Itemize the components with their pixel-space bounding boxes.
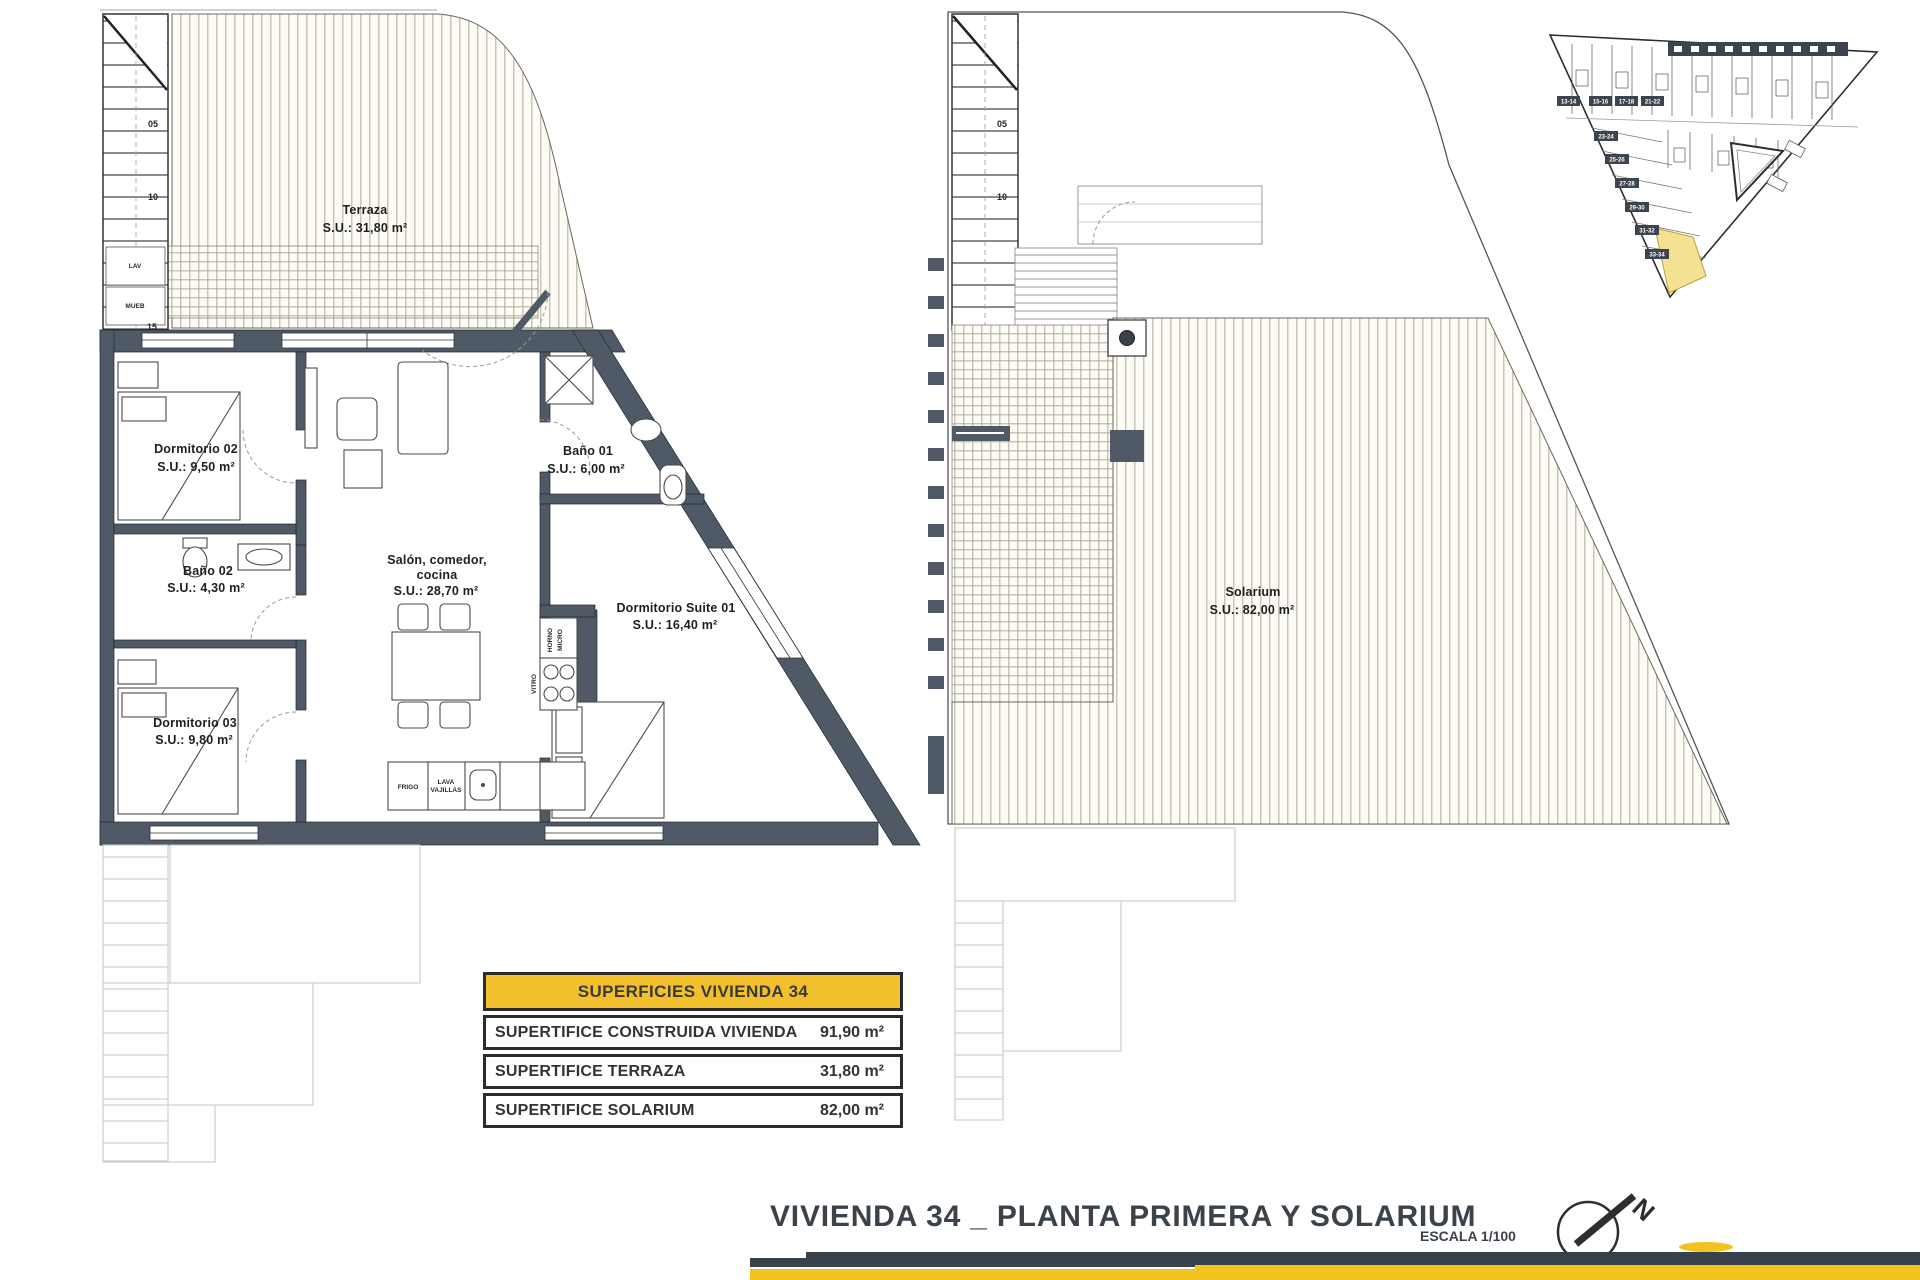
unit-badge: 29-30	[1629, 206, 1645, 212]
room-label-salon-2: cocina	[417, 568, 459, 582]
stairs-solarium: 05 10	[952, 14, 1018, 330]
footer-yellow-bar-left	[750, 1269, 1198, 1280]
row-label: SUPERTIFICE TERRAZA	[486, 1063, 685, 1081]
kitchen-label-vitro: VITRO	[531, 674, 538, 694]
site-unit-badges-top: 13-14 15-16 17-18 21-22	[1557, 96, 1664, 106]
unit-badge: 31-32	[1639, 229, 1655, 235]
table-row: SUPERTIFICE SOLARIUM 82,00 m²	[483, 1093, 903, 1128]
closet-label-mueb: MUEB	[125, 303, 144, 310]
kitchen-label-lava1: LAVA	[438, 779, 455, 786]
yellow-swoosh	[1679, 1242, 1733, 1252]
floorplan-sheet: 05 10 15 LAV MUEB	[0, 0, 1920, 1280]
table-row: SUPERTIFICE TERRAZA 31,80 m²	[483, 1054, 903, 1089]
room-label-suite: Dormitorio Suite 01	[616, 601, 735, 615]
table-row: SUPERTIFICE CONSTRUIDA VIVIENDA 91,90 m²	[483, 1015, 903, 1050]
row-label: SUPERTIFICE CONSTRUIDA VIVIENDA	[486, 1024, 798, 1042]
scale-label: ESCALA 1/100	[1420, 1228, 1516, 1244]
posts	[928, 258, 944, 794]
stair-number: 05	[148, 119, 158, 129]
room-area-salon: S.U.: 28,70 m²	[394, 584, 479, 598]
footer-dark-bar-step	[750, 1258, 808, 1267]
terrace-pergola-grid	[148, 246, 538, 318]
unit-badge: 23-24	[1598, 135, 1614, 141]
unit-badge: 15-16	[1593, 100, 1609, 106]
room-label-dorm03: Dormitorio 03	[153, 716, 237, 730]
unit-badge: 33-34	[1649, 253, 1665, 259]
room-area-terraza: S.U.: 31,80 m²	[323, 221, 408, 235]
site-plan: 13-14 15-16 17-18 21-22 23-24 25-26 27-2…	[1550, 35, 1877, 297]
room-label-salon-1: Salón, comedor,	[387, 553, 487, 567]
stair-number: 05	[997, 119, 1007, 129]
row-value: 31,80 m²	[820, 1063, 900, 1081]
unit-badge: 27-28	[1619, 182, 1635, 188]
kitchen-label-lava2: VAJILLAS	[431, 787, 463, 794]
lower-floor-outline	[103, 845, 420, 1162]
room-label-solarium: Solarium	[1225, 585, 1280, 599]
room-area-dorm02: S.U.: 9,50 m²	[157, 460, 235, 474]
row-label: SUPERTIFICE SOLARIUM	[486, 1102, 695, 1120]
room-area-solarium: S.U.: 82,00 m²	[1210, 603, 1295, 617]
surfaces-table: SUPERFICIES VIVIENDA 34 SUPERTIFICE CONS…	[483, 972, 903, 1128]
kitchen-label-horno: HORNO	[547, 628, 554, 652]
planter-dark	[1110, 430, 1144, 462]
room-label-terraza: Terraza	[343, 203, 389, 217]
plan-drawing: 05 10 15 LAV MUEB	[0, 0, 1920, 1280]
kitchen-label-micro: MICRO	[557, 629, 564, 651]
room-area-suite: S.U.: 16,40 m²	[633, 618, 718, 632]
kitchen-label-frigo: FRIGO	[398, 784, 419, 791]
louver-area	[1015, 248, 1117, 328]
sheet-title: VIVIENDA 34 _ PLANTA PRIMERA Y SOLARIUM	[770, 1200, 1476, 1234]
surfaces-table-header: SUPERFICIES VIVIENDA 34	[483, 972, 903, 1011]
closet-label-lav: LAV	[129, 263, 142, 270]
room-label-bano02: Baño 02	[183, 564, 233, 578]
unit-badge: 21-22	[1645, 100, 1661, 106]
room-label-bano01: Baño 01	[563, 444, 613, 458]
unit-badge: 17-18	[1619, 100, 1635, 106]
stair-number: 10	[148, 192, 158, 202]
stairs-upper: 05 10 15 LAV MUEB	[103, 14, 168, 332]
room-area-dorm03: S.U.: 9,80 m²	[155, 733, 233, 747]
room-label-dorm02: Dormitorio 02	[154, 442, 238, 456]
pergola-grid	[952, 325, 1113, 702]
footer-yellow-bar-right	[1195, 1265, 1920, 1280]
room-area-bano02: S.U.: 4,30 m²	[167, 581, 245, 595]
unit-badge: 25-26	[1609, 158, 1625, 164]
lower-floor-outline-right	[955, 828, 1235, 1120]
row-value: 82,00 m²	[820, 1102, 900, 1120]
unit-badge: 13-14	[1561, 100, 1577, 106]
room-area-bano01: S.U.: 6,00 m²	[547, 462, 625, 476]
stair-number: 10	[997, 192, 1007, 202]
solarium-plan: 05 10 Solarium S.	[928, 12, 1729, 1120]
row-value: 91,90 m²	[820, 1024, 900, 1042]
